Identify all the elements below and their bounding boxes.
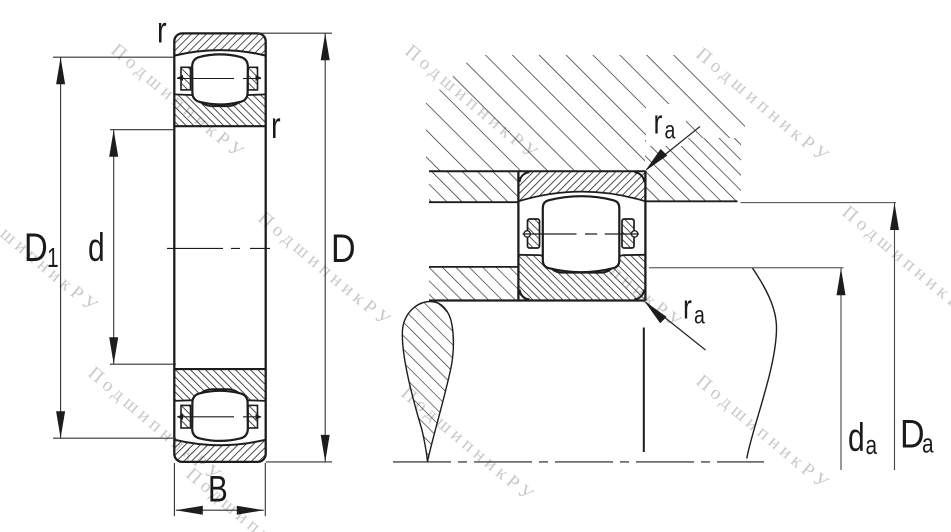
svg-text:a: a [922, 429, 934, 458]
svg-text:r: r [683, 288, 692, 326]
svg-text:r: r [157, 10, 167, 51]
svg-text:r: r [654, 103, 663, 141]
svg-text:1: 1 [47, 243, 59, 274]
svg-text:ПодшипникРУ: ПодшипникРУ [182, 464, 326, 532]
svg-text:d: d [848, 416, 865, 460]
svg-text:ПодшипникРУ: ПодшипникРУ [692, 371, 836, 496]
svg-text:a: a [866, 431, 878, 460]
svg-text:B: B [208, 469, 228, 510]
svg-text:D: D [900, 411, 925, 456]
svg-text:D: D [24, 225, 48, 270]
svg-text:r: r [271, 106, 281, 147]
svg-text:D: D [331, 225, 356, 270]
svg-text:a: a [665, 116, 676, 144]
svg-text:a: a [694, 301, 705, 329]
svg-text:d: d [88, 226, 105, 270]
